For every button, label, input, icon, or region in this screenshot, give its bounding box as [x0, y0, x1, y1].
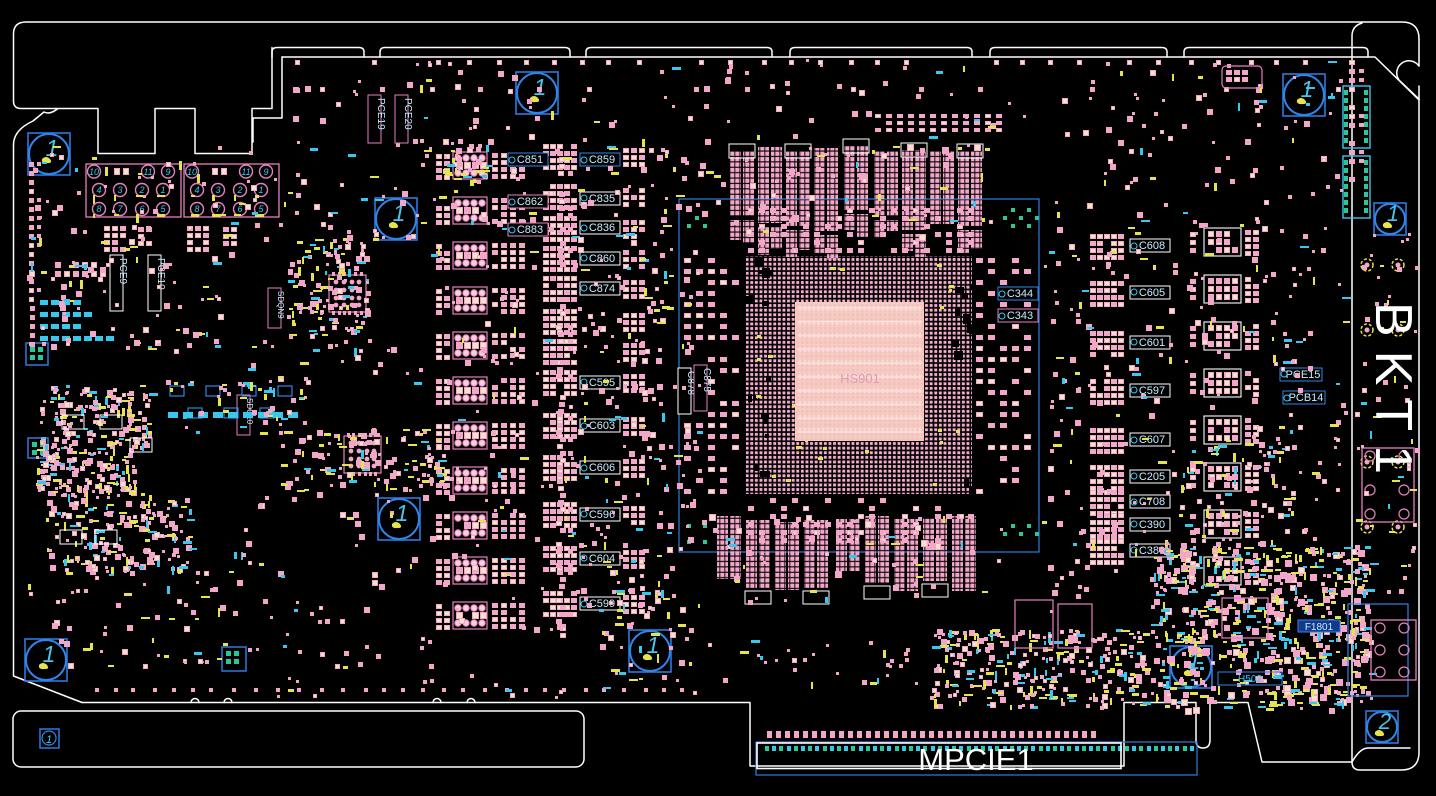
svg-text:2: 2 [236, 185, 242, 195]
svg-text:C390: C390 [1139, 519, 1165, 531]
svg-text:C874: C874 [589, 283, 615, 295]
svg-text:C596: C596 [589, 509, 615, 521]
svg-text:C883: C883 [517, 224, 543, 236]
svg-text:C343: C343 [1007, 310, 1033, 322]
svg-text:C859: C859 [589, 154, 615, 166]
svg-text:1: 1 [1387, 201, 1399, 226]
svg-text:C851: C851 [517, 154, 543, 166]
svg-text:C875: C875 [701, 368, 712, 392]
svg-text:C604: C604 [589, 553, 615, 565]
svg-text:C205: C205 [1139, 471, 1165, 483]
svg-text:6: 6 [237, 204, 242, 214]
svg-text:C606: C606 [589, 462, 615, 474]
svg-text:10: 10 [89, 167, 99, 177]
svg-text:C862: C862 [517, 196, 543, 208]
svg-text:9: 9 [165, 167, 170, 177]
svg-text:1: 1 [396, 500, 409, 526]
svg-text:C601: C601 [1139, 337, 1165, 349]
svg-text:PCB14: PCB14 [1289, 392, 1324, 404]
svg-text:1: 1 [258, 185, 263, 195]
svg-text:11: 11 [241, 167, 250, 177]
svg-text:11: 11 [143, 167, 152, 177]
svg-text:3: 3 [215, 185, 220, 195]
svg-text:C708: C708 [1139, 496, 1165, 508]
svg-text:2: 2 [138, 185, 144, 195]
svg-text:3: 3 [117, 185, 122, 195]
svg-text:10: 10 [187, 167, 197, 177]
svg-text:PCE9: PCE9 [117, 258, 128, 285]
svg-text:PCE19: PCE19 [375, 98, 386, 130]
svg-text:4: 4 [194, 185, 199, 195]
svg-text:C605: C605 [1139, 287, 1165, 299]
svg-text:C595: C595 [589, 377, 615, 389]
svg-text:PCE15: PCE15 [1286, 369, 1321, 381]
svg-text:1: 1 [160, 185, 165, 195]
svg-text:4: 4 [96, 185, 101, 195]
svg-text:C344: C344 [1007, 288, 1033, 300]
svg-text:SDQN9: SDQN9 [276, 291, 285, 319]
svg-text:9: 9 [263, 167, 268, 177]
svg-text:HS901: HS901 [840, 371, 880, 386]
svg-text:C608: C608 [1139, 240, 1165, 252]
svg-text:8: 8 [96, 204, 101, 214]
svg-text:PCE20: PCE20 [402, 98, 413, 130]
svg-text:8: 8 [194, 204, 199, 214]
svg-text:C603: C603 [589, 420, 615, 432]
svg-text:1: 1 [46, 734, 52, 746]
svg-text:1: 1 [43, 641, 56, 667]
svg-text:C836: C836 [589, 222, 615, 234]
